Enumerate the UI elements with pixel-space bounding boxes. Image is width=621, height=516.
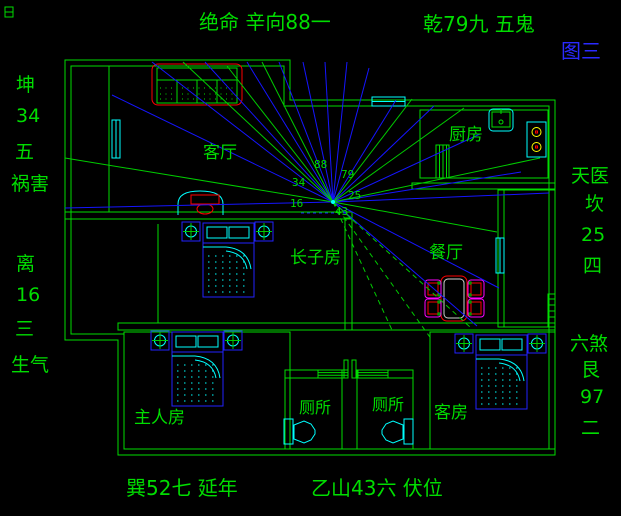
- bed-guest-room: [455, 334, 546, 409]
- compass-right-tianyi: 天医: [571, 167, 609, 186]
- compass-left-16: 16: [16, 286, 40, 305]
- figure-title: 图三: [561, 41, 601, 61]
- compass-right-liusha: 六煞: [570, 335, 608, 354]
- window-dining-right: [496, 238, 504, 273]
- compass-right-kan: 坎: [585, 195, 604, 214]
- compass-label-bottom-center: 乙山43六 伏位: [311, 478, 443, 498]
- tv-cabinet: [178, 191, 223, 215]
- room-label-guest: 客房: [434, 405, 468, 422]
- room-label-toilet-2: 厕所: [372, 397, 404, 413]
- center-number-16: 16: [290, 197, 303, 210]
- center-number-79: 79: [341, 168, 354, 181]
- compass-right-si: 四: [583, 257, 602, 276]
- ucs-icon: [5, 7, 13, 17]
- compass-right-25: 25: [581, 226, 605, 245]
- compass-left-34: 34: [16, 107, 40, 126]
- room-label-eldest: 长子房: [290, 250, 341, 267]
- kitchen-cabinet-hatch: [436, 145, 449, 178]
- center-number-34: 34: [292, 176, 305, 189]
- compass-left-huohai: 祸害: [11, 175, 49, 194]
- center-number-25: 25: [348, 189, 361, 202]
- cad-floorplan-canvas[interactable]: 绝命 辛向88一 乾79九 五鬼 图三 坤 34 五 祸害 离 16 三 生气 …: [0, 0, 621, 516]
- compass-right-97: 97: [580, 388, 604, 407]
- bed-eldest-room: [182, 222, 273, 297]
- room-label-master: 主人房: [134, 410, 185, 427]
- sight-lines-blue: [65, 62, 549, 326]
- center-number-43: 43: [335, 205, 348, 218]
- window-top: [372, 97, 405, 106]
- toilet-fixture-1: [284, 419, 315, 444]
- kitchen-sink: [489, 109, 513, 131]
- toilet-fixture-2: [382, 419, 413, 444]
- compass-left-wu: 五: [15, 143, 34, 162]
- compass-left-li: 离: [16, 255, 35, 274]
- window-living-left: [112, 120, 120, 158]
- room-label-living: 客厅: [203, 145, 237, 162]
- compass-label-top-right: 乾79九 五鬼: [423, 14, 535, 34]
- center-number-88: 88: [314, 158, 327, 171]
- room-label-toilet-1: 厕所: [299, 400, 331, 416]
- sofa: [152, 64, 242, 105]
- compass-label-bottom-left: 巽52七 延年: [126, 478, 238, 498]
- hatched-window-toilet-2: [358, 370, 388, 378]
- compass-left-san: 三: [15, 320, 34, 339]
- room-label-dining: 餐厅: [429, 245, 463, 262]
- compass-left-shengqi: 生气: [11, 356, 49, 375]
- room-label-kitchen: 厨房: [449, 127, 483, 144]
- compass-right-er: 二: [581, 419, 600, 438]
- compass-label-top: 绝命 辛向88一: [199, 12, 331, 32]
- bed-master-room: [151, 331, 242, 406]
- compass-center-point: [331, 200, 335, 204]
- dining-chairs: [425, 280, 484, 317]
- compass-right-gen: 艮: [581, 361, 600, 380]
- stove: [527, 122, 546, 157]
- compass-left-kun: 坤: [16, 76, 35, 95]
